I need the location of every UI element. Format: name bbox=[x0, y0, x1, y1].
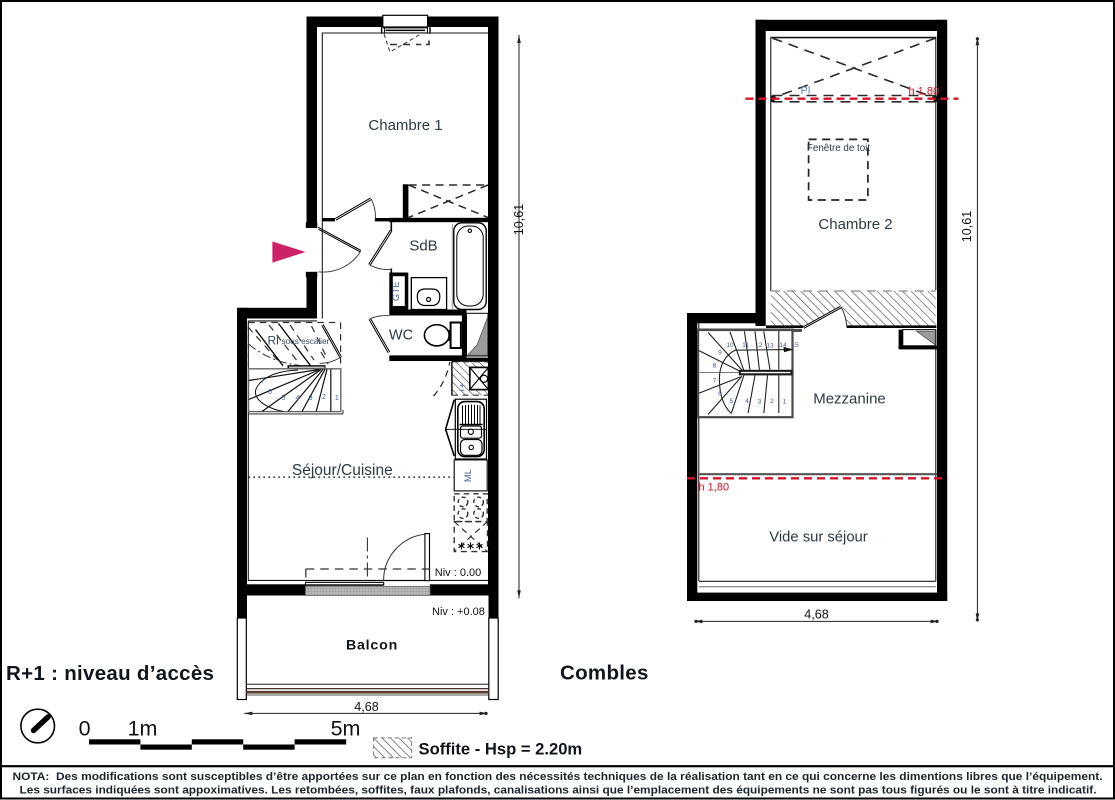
svg-text:Mezzanine: Mezzanine bbox=[813, 390, 886, 407]
svg-text:3: 3 bbox=[309, 395, 313, 402]
svg-text:Soffite - Hsp = 2.20m: Soffite - Hsp = 2.20m bbox=[419, 739, 583, 758]
svg-text:SdB: SdB bbox=[409, 238, 437, 255]
svg-text:NOTA: Des modifications sont: NOTA: Des modifications sont susceptible… bbox=[13, 771, 1103, 783]
svg-text:Combles: Combles bbox=[560, 662, 649, 685]
svg-text:Rl: Rl bbox=[268, 334, 279, 348]
svg-text:2: 2 bbox=[770, 398, 774, 405]
svg-text:3: 3 bbox=[758, 399, 762, 406]
svg-text:Vide sur séjour: Vide sur séjour bbox=[769, 529, 867, 545]
svg-text:Balcon: Balcon bbox=[346, 637, 398, 653]
svg-text:Les surfaces indiquées sont ap: Les surfaces indiquées sont appoximative… bbox=[20, 785, 1097, 797]
svg-text:15: 15 bbox=[791, 342, 799, 349]
svg-text:7: 7 bbox=[260, 378, 264, 385]
svg-text:Séjour/Cuisine: Séjour/Cuisine bbox=[292, 462, 393, 479]
svg-text:13: 13 bbox=[766, 342, 774, 349]
svg-text:10,61: 10,61 bbox=[512, 204, 526, 236]
svg-text:Niv : +0.08: Niv : +0.08 bbox=[432, 606, 485, 618]
svg-text:4,68: 4,68 bbox=[354, 700, 379, 714]
svg-text:Niv : 0.00: Niv : 0.00 bbox=[435, 567, 481, 579]
svg-text:7: 7 bbox=[713, 377, 717, 384]
svg-text:12: 12 bbox=[755, 342, 763, 349]
svg-text:1m: 1m bbox=[128, 716, 158, 740]
svg-text:sous escalier: sous escalier bbox=[282, 337, 330, 346]
svg-text:4: 4 bbox=[295, 395, 299, 402]
svg-text:h 1,80: h 1,80 bbox=[909, 86, 940, 98]
svg-text:10,61: 10,61 bbox=[960, 211, 974, 243]
svg-text:9: 9 bbox=[718, 349, 722, 356]
svg-text:2: 2 bbox=[322, 394, 326, 401]
svg-text:ML: ML bbox=[463, 469, 474, 482]
svg-text:4,68: 4,68 bbox=[804, 608, 829, 622]
svg-text:10: 10 bbox=[726, 342, 734, 349]
svg-text:Pl: Pl bbox=[801, 85, 811, 97]
svg-text:WC: WC bbox=[389, 328, 413, 344]
svg-text:5: 5 bbox=[281, 395, 285, 402]
svg-text:14: 14 bbox=[779, 342, 787, 349]
svg-text:1: 1 bbox=[335, 395, 339, 402]
svg-text:5: 5 bbox=[729, 398, 733, 405]
svg-text:Chambre 1: Chambre 1 bbox=[368, 117, 442, 134]
svg-text:6: 6 bbox=[718, 391, 722, 398]
svg-text:Fenêtre de toit: Fenêtre de toit bbox=[807, 143, 870, 154]
svg-text:h 1,80: h 1,80 bbox=[699, 482, 730, 494]
svg-text:0: 0 bbox=[79, 716, 91, 740]
svg-text:6: 6 bbox=[268, 389, 272, 396]
svg-text:Chambre 2: Chambre 2 bbox=[818, 216, 892, 233]
svg-text:8: 8 bbox=[713, 362, 717, 369]
svg-text:1: 1 bbox=[783, 399, 787, 406]
svg-text:GTE: GTE bbox=[391, 282, 402, 302]
svg-text:R+1 : niveau d’accès: R+1 : niveau d’accès bbox=[6, 662, 214, 685]
svg-text:5m: 5m bbox=[331, 716, 361, 740]
svg-text:4: 4 bbox=[745, 398, 749, 405]
svg-text:11: 11 bbox=[742, 342, 749, 349]
